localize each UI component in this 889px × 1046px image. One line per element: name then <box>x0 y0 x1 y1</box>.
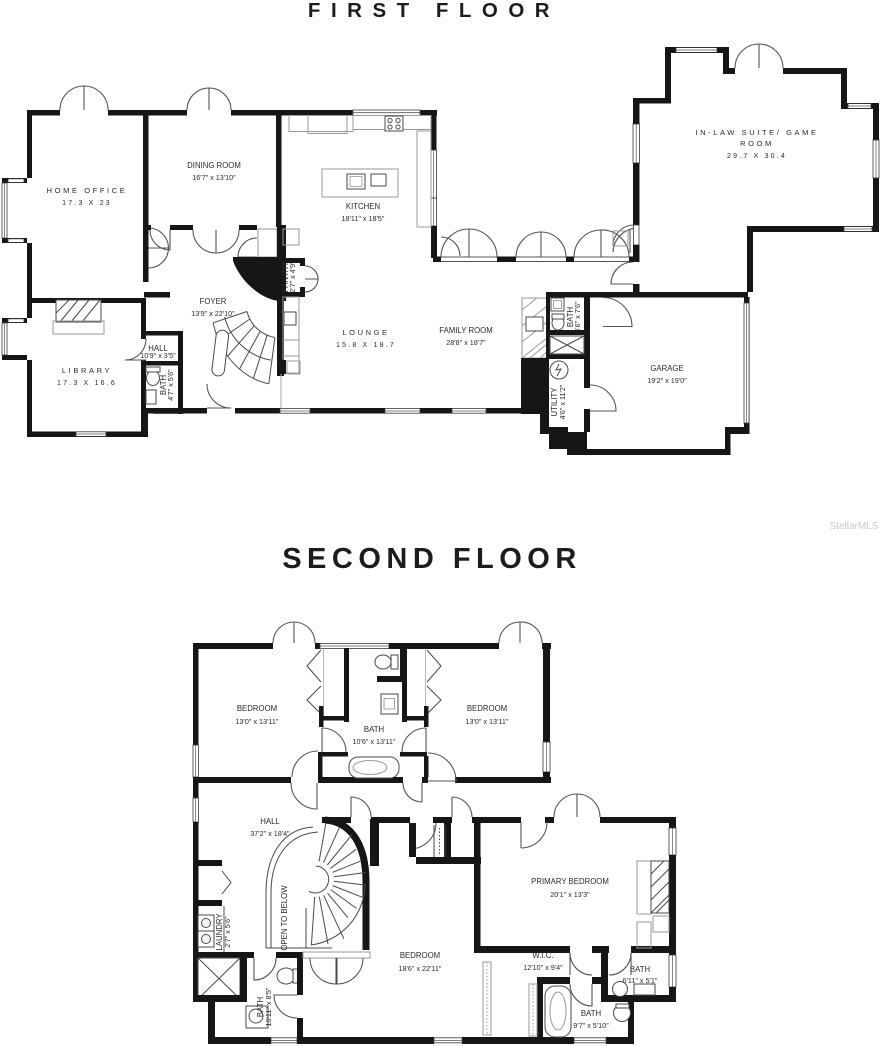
svg-text:28'8" x 18'7": 28'8" x 18'7" <box>446 338 486 347</box>
svg-text:LOUNGE: LOUNGE <box>342 328 389 337</box>
svg-text:4'7" x 5'6": 4'7" x 5'6" <box>166 369 175 401</box>
svg-text:BATH: BATH <box>581 1009 601 1018</box>
svg-text:37'2" x 18'4": 37'2" x 18'4" <box>250 829 290 838</box>
svg-text:FIRST FLOOR: FIRST FLOOR <box>308 0 560 22</box>
svg-text:2'7" x 5'6": 2'7" x 5'6" <box>223 916 232 948</box>
svg-text:19'2" x 19'0": 19'2" x 19'0" <box>647 376 687 385</box>
svg-text:BEDROOM: BEDROOM <box>467 704 507 713</box>
svg-text:SECOND FLOOR: SECOND FLOOR <box>282 543 582 575</box>
svg-text:10'9" x 3'5": 10'9" x 3'5" <box>140 351 176 360</box>
svg-text:GARAGE: GARAGE <box>650 364 683 373</box>
svg-text:FAMILY ROOM: FAMILY ROOM <box>439 326 492 335</box>
svg-text:10'11" x 8'5": 10'11" x 8'5" <box>264 987 273 1026</box>
svg-text:BATH: BATH <box>364 725 384 734</box>
svg-text:17.3 X 23: 17.3 X 23 <box>62 200 112 207</box>
svg-text:W.I.C.: W.I.C. <box>532 951 553 960</box>
svg-text:FOYER: FOYER <box>200 297 227 306</box>
svg-text:DINING ROOM: DINING ROOM <box>187 161 241 170</box>
svg-text:13'9" x 22'10": 13'9" x 22'10" <box>191 309 235 318</box>
svg-text:BEDROOM: BEDROOM <box>400 951 440 960</box>
svg-text:18'6" x 22'11": 18'6" x 22'11" <box>399 964 442 973</box>
svg-text:16'7" x 13'10": 16'7" x 13'10" <box>192 173 236 182</box>
svg-text:9'7" x 5'10": 9'7" x 5'10" <box>573 1021 609 1030</box>
svg-text:PRIMARY BEDROOM: PRIMARY BEDROOM <box>531 877 609 886</box>
svg-text:15.8 X 18.7: 15.8 X 18.7 <box>336 342 396 349</box>
svg-text:13'0" x 13'11": 13'0" x 13'11" <box>466 717 509 726</box>
svg-text:29.7 X 30.4: 29.7 X 30.4 <box>727 153 787 160</box>
svg-text:BATH: BATH <box>630 965 650 974</box>
svg-text:20'1" x 13'3": 20'1" x 13'3" <box>550 890 590 899</box>
svg-text:17.3 X 16.6: 17.3 X 16.6 <box>57 380 117 387</box>
svg-text:BEDROOM: BEDROOM <box>237 704 277 713</box>
svg-text:KITCHEN: KITCHEN <box>346 202 380 211</box>
svg-text:13'0" x 13'11": 13'0" x 13'11" <box>236 717 279 726</box>
svg-text:4'6" x 7'6": 4'6" x 7'6" <box>573 301 582 333</box>
svg-text:12'10" x 9'4": 12'10" x 9'4" <box>523 963 563 972</box>
svg-text:HALL: HALL <box>260 817 280 826</box>
svg-text:HOME OFFICE: HOME OFFICE <box>47 186 128 195</box>
svg-text:ROOM: ROOM <box>740 139 774 148</box>
svg-text:2'7" x 4'9": 2'7" x 4'9" <box>288 261 297 293</box>
svg-text:10'6" x 13'11": 10'6" x 13'11" <box>353 737 396 746</box>
svg-text:18'11" x 18'5": 18'11" x 18'5" <box>342 214 385 223</box>
svg-text:OPEN TO BELOW: OPEN TO BELOW <box>280 885 289 951</box>
svg-text:StellarMLS: StellarMLS <box>830 521 879 532</box>
svg-text:6'11" x 5'1": 6'11" x 5'1" <box>623 976 658 985</box>
svg-text:4'6" x 11'2": 4'6" x 11'2" <box>558 384 567 419</box>
svg-text:IN-LAW SUITE/ GAME: IN-LAW SUITE/ GAME <box>695 128 818 137</box>
svg-text:LIBRARY: LIBRARY <box>62 366 112 375</box>
